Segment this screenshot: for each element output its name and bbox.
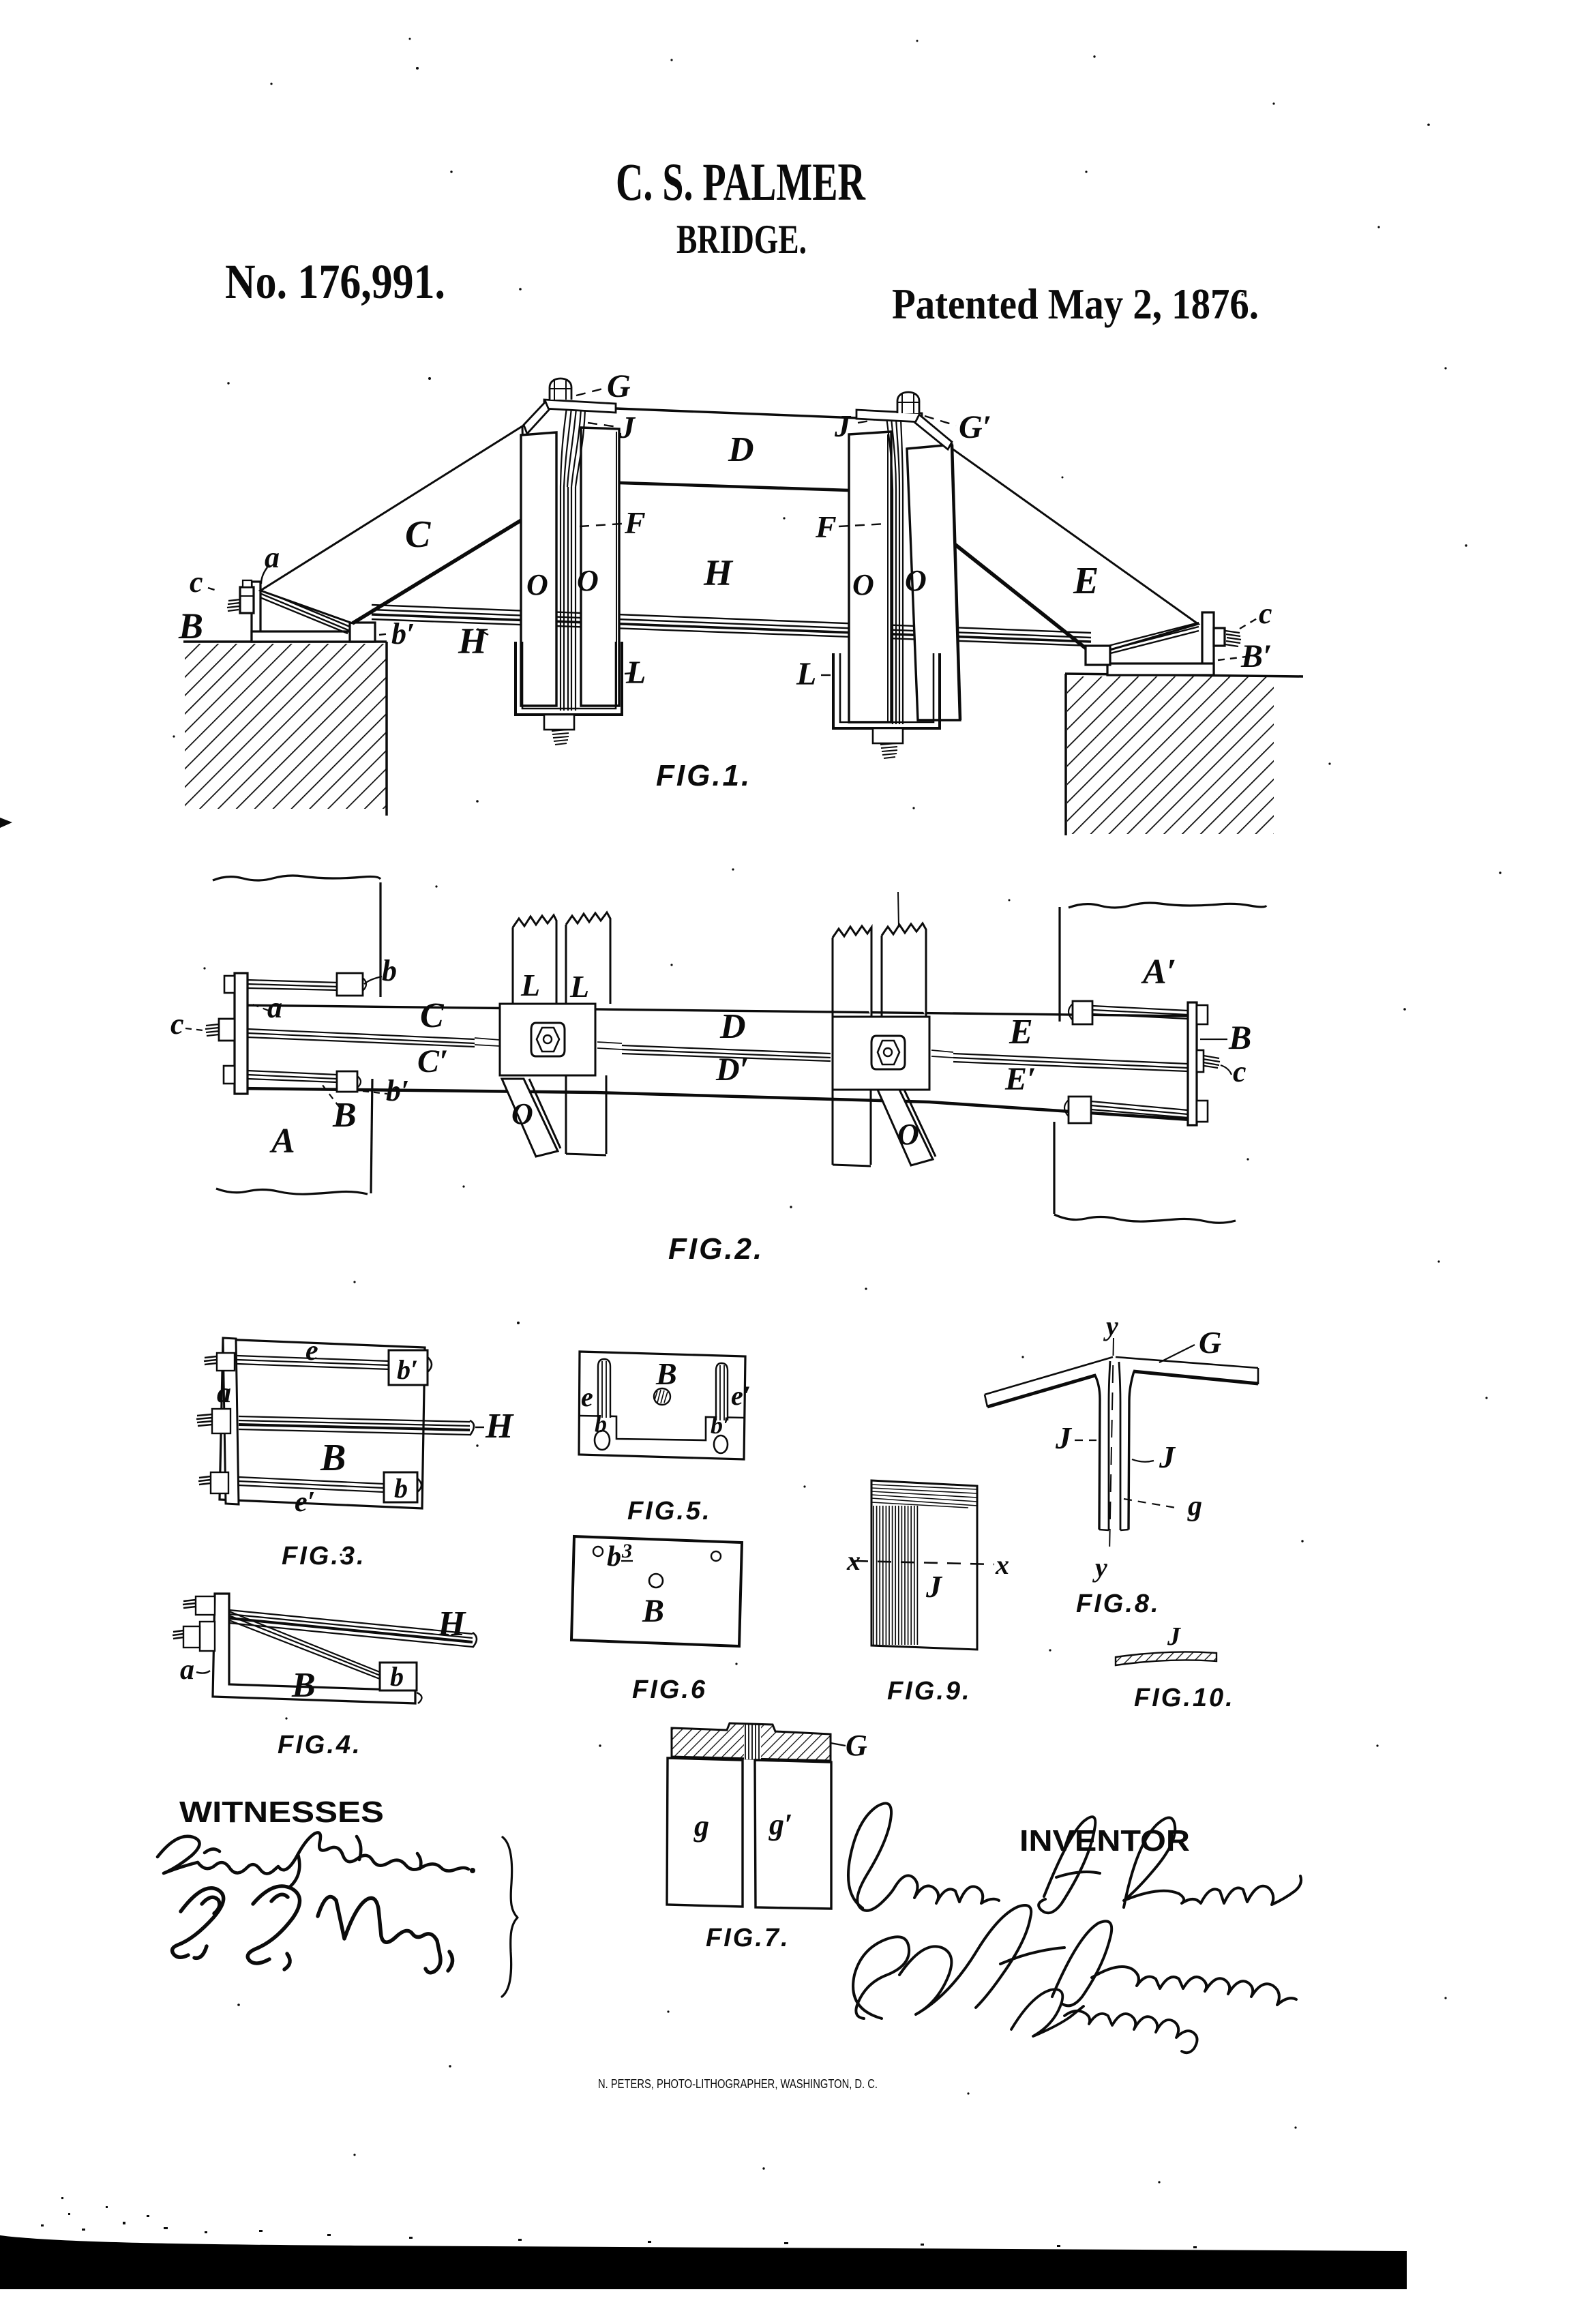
svg-text:a: a xyxy=(267,991,282,1024)
svg-text:D: D xyxy=(719,1007,746,1046)
svg-text:b: b xyxy=(390,1661,404,1692)
svg-text:FIG.2.: FIG.2. xyxy=(668,1232,764,1266)
svg-text:b′: b′ xyxy=(397,1354,418,1385)
svg-text:E′: E′ xyxy=(1004,1061,1036,1097)
svg-text:O: O xyxy=(526,568,548,601)
svg-text:g: g xyxy=(1187,1491,1202,1522)
svg-text:L: L xyxy=(569,969,589,1004)
svg-text:a: a xyxy=(265,541,280,574)
svg-text:c: c xyxy=(1259,597,1272,630)
svg-text:INVENTOR: INVENTOR xyxy=(1019,1824,1190,1858)
svg-text:G′: G′ xyxy=(959,409,991,445)
svg-text:b′: b′ xyxy=(391,617,415,651)
svg-text:b: b xyxy=(382,954,397,987)
svg-text:WITNESSES: WITNESSES xyxy=(179,1796,384,1829)
svg-text:c: c xyxy=(1233,1055,1247,1088)
svg-text:e: e xyxy=(581,1382,593,1412)
svg-text:e: e xyxy=(305,1335,318,1367)
svg-text:Patented May 2, 1876.: Patented May 2, 1876. xyxy=(892,280,1259,328)
svg-text:B: B xyxy=(332,1096,357,1135)
svg-text:H: H xyxy=(458,621,488,661)
svg-text:FIG.8.: FIG.8. xyxy=(1076,1590,1161,1618)
svg-text:FIG.4.: FIG.4. xyxy=(278,1731,362,1759)
svg-text:O: O xyxy=(577,564,599,597)
svg-text:e′: e′ xyxy=(731,1380,751,1411)
svg-text:H: H xyxy=(437,1605,466,1643)
svg-text:H: H xyxy=(485,1407,514,1446)
svg-text:FIG.6: FIG.6 xyxy=(632,1675,707,1704)
svg-text:e′: e′ xyxy=(295,1487,315,1518)
svg-text:BRIDGE.: BRIDGE. xyxy=(676,217,807,262)
svg-text:x: x xyxy=(995,1549,1009,1580)
svg-text:J: J xyxy=(925,1569,943,1604)
svg-text:L: L xyxy=(625,655,646,691)
svg-text:g′: g′ xyxy=(768,1808,792,1841)
svg-text:O: O xyxy=(511,1097,533,1131)
svg-text:b: b xyxy=(394,1473,408,1504)
svg-text:L: L xyxy=(796,656,816,692)
svg-text:B′: B′ xyxy=(1240,638,1272,674)
svg-text:F: F xyxy=(815,509,837,544)
svg-text:O: O xyxy=(905,564,927,597)
svg-text:O: O xyxy=(852,568,874,601)
svg-text:y: y xyxy=(1103,1311,1118,1341)
svg-text:B: B xyxy=(320,1437,346,1479)
svg-text:C: C xyxy=(405,513,431,556)
svg-text:B: B xyxy=(642,1593,664,1629)
svg-text:FIG.1.: FIG.1. xyxy=(656,759,751,792)
svg-text:J: J xyxy=(1159,1440,1176,1474)
svg-text:J: J xyxy=(834,408,852,443)
svg-text:g: g xyxy=(693,1809,709,1843)
svg-text:B: B xyxy=(1228,1018,1251,1056)
svg-text:No. 176,991.: No. 176,991. xyxy=(225,254,445,309)
svg-text:b: b xyxy=(607,1541,621,1573)
svg-text:A: A xyxy=(269,1122,295,1161)
svg-text:C. S. PALMER: C. S. PALMER xyxy=(616,152,866,211)
svg-text:c: c xyxy=(190,565,203,599)
svg-text:G: G xyxy=(607,368,631,404)
svg-text:E: E xyxy=(1073,560,1099,602)
svg-text:C: C xyxy=(420,996,445,1035)
svg-text:G: G xyxy=(846,1729,867,1762)
svg-text:L: L xyxy=(520,968,540,1002)
svg-text:J: J xyxy=(1167,1622,1181,1651)
svg-text:C′: C′ xyxy=(417,1043,449,1079)
svg-text:b′: b′ xyxy=(711,1412,730,1439)
svg-text:J: J xyxy=(618,410,636,445)
svg-text:A′: A′ xyxy=(1141,953,1176,992)
svg-text:a: a xyxy=(217,1377,231,1409)
svg-text:FIG.3.: FIG.3. xyxy=(282,1542,366,1570)
svg-text:FIG.7.: FIG.7. xyxy=(706,1924,790,1952)
svg-text:G: G xyxy=(1199,1325,1221,1360)
svg-text:F: F xyxy=(624,505,646,540)
svg-text:N. PETERS, PHOTO-LITHOGRAPHER,: N. PETERS, PHOTO-LITHOGRAPHER, WASHINGTO… xyxy=(598,2077,878,2091)
svg-text:3: 3 xyxy=(621,1540,632,1562)
svg-text:O: O xyxy=(897,1118,919,1151)
svg-text:E: E xyxy=(1009,1013,1033,1052)
svg-text:B: B xyxy=(178,606,203,646)
svg-text:FIG.10.: FIG.10. xyxy=(1134,1684,1235,1712)
svg-text:B: B xyxy=(655,1356,677,1391)
svg-text:H: H xyxy=(703,552,734,593)
svg-text:FIG.5.: FIG.5. xyxy=(627,1497,712,1525)
svg-text:a: a xyxy=(180,1654,194,1686)
svg-text:y: y xyxy=(1092,1552,1107,1583)
svg-text:c: c xyxy=(170,1007,184,1041)
svg-text:B: B xyxy=(291,1666,316,1705)
svg-text:x: x xyxy=(846,1545,861,1576)
svg-text:D: D xyxy=(728,430,754,469)
svg-text:b′: b′ xyxy=(386,1074,409,1107)
svg-text:b: b xyxy=(595,1410,607,1437)
svg-text:D′: D′ xyxy=(715,1052,749,1088)
svg-text:FIG.9.: FIG.9. xyxy=(887,1677,972,1705)
svg-text:J: J xyxy=(1055,1420,1073,1455)
